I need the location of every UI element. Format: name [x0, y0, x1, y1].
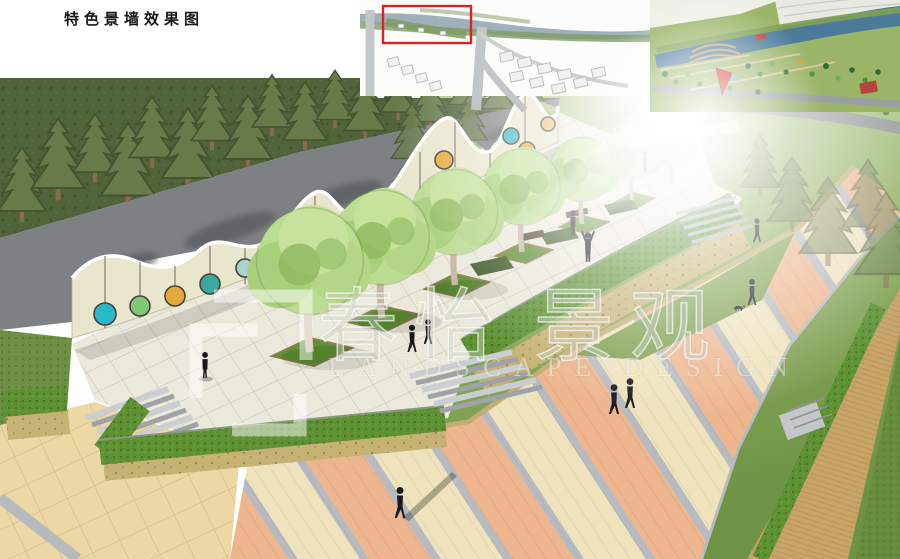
- planter-small: [2, 398, 69, 428]
- page-title: 特色景墙效果图: [64, 8, 204, 29]
- wall-circle: [165, 286, 185, 306]
- wall-circle: [130, 296, 150, 316]
- wall-circle: [94, 303, 116, 325]
- wall-circle: [200, 274, 220, 294]
- site-plan-inset: [360, 0, 900, 112]
- rendering-sheet: 春怡 景观 LANDSCAPE DESIGN 特色景墙效果图: [0, 0, 900, 559]
- road: [476, 27, 482, 110]
